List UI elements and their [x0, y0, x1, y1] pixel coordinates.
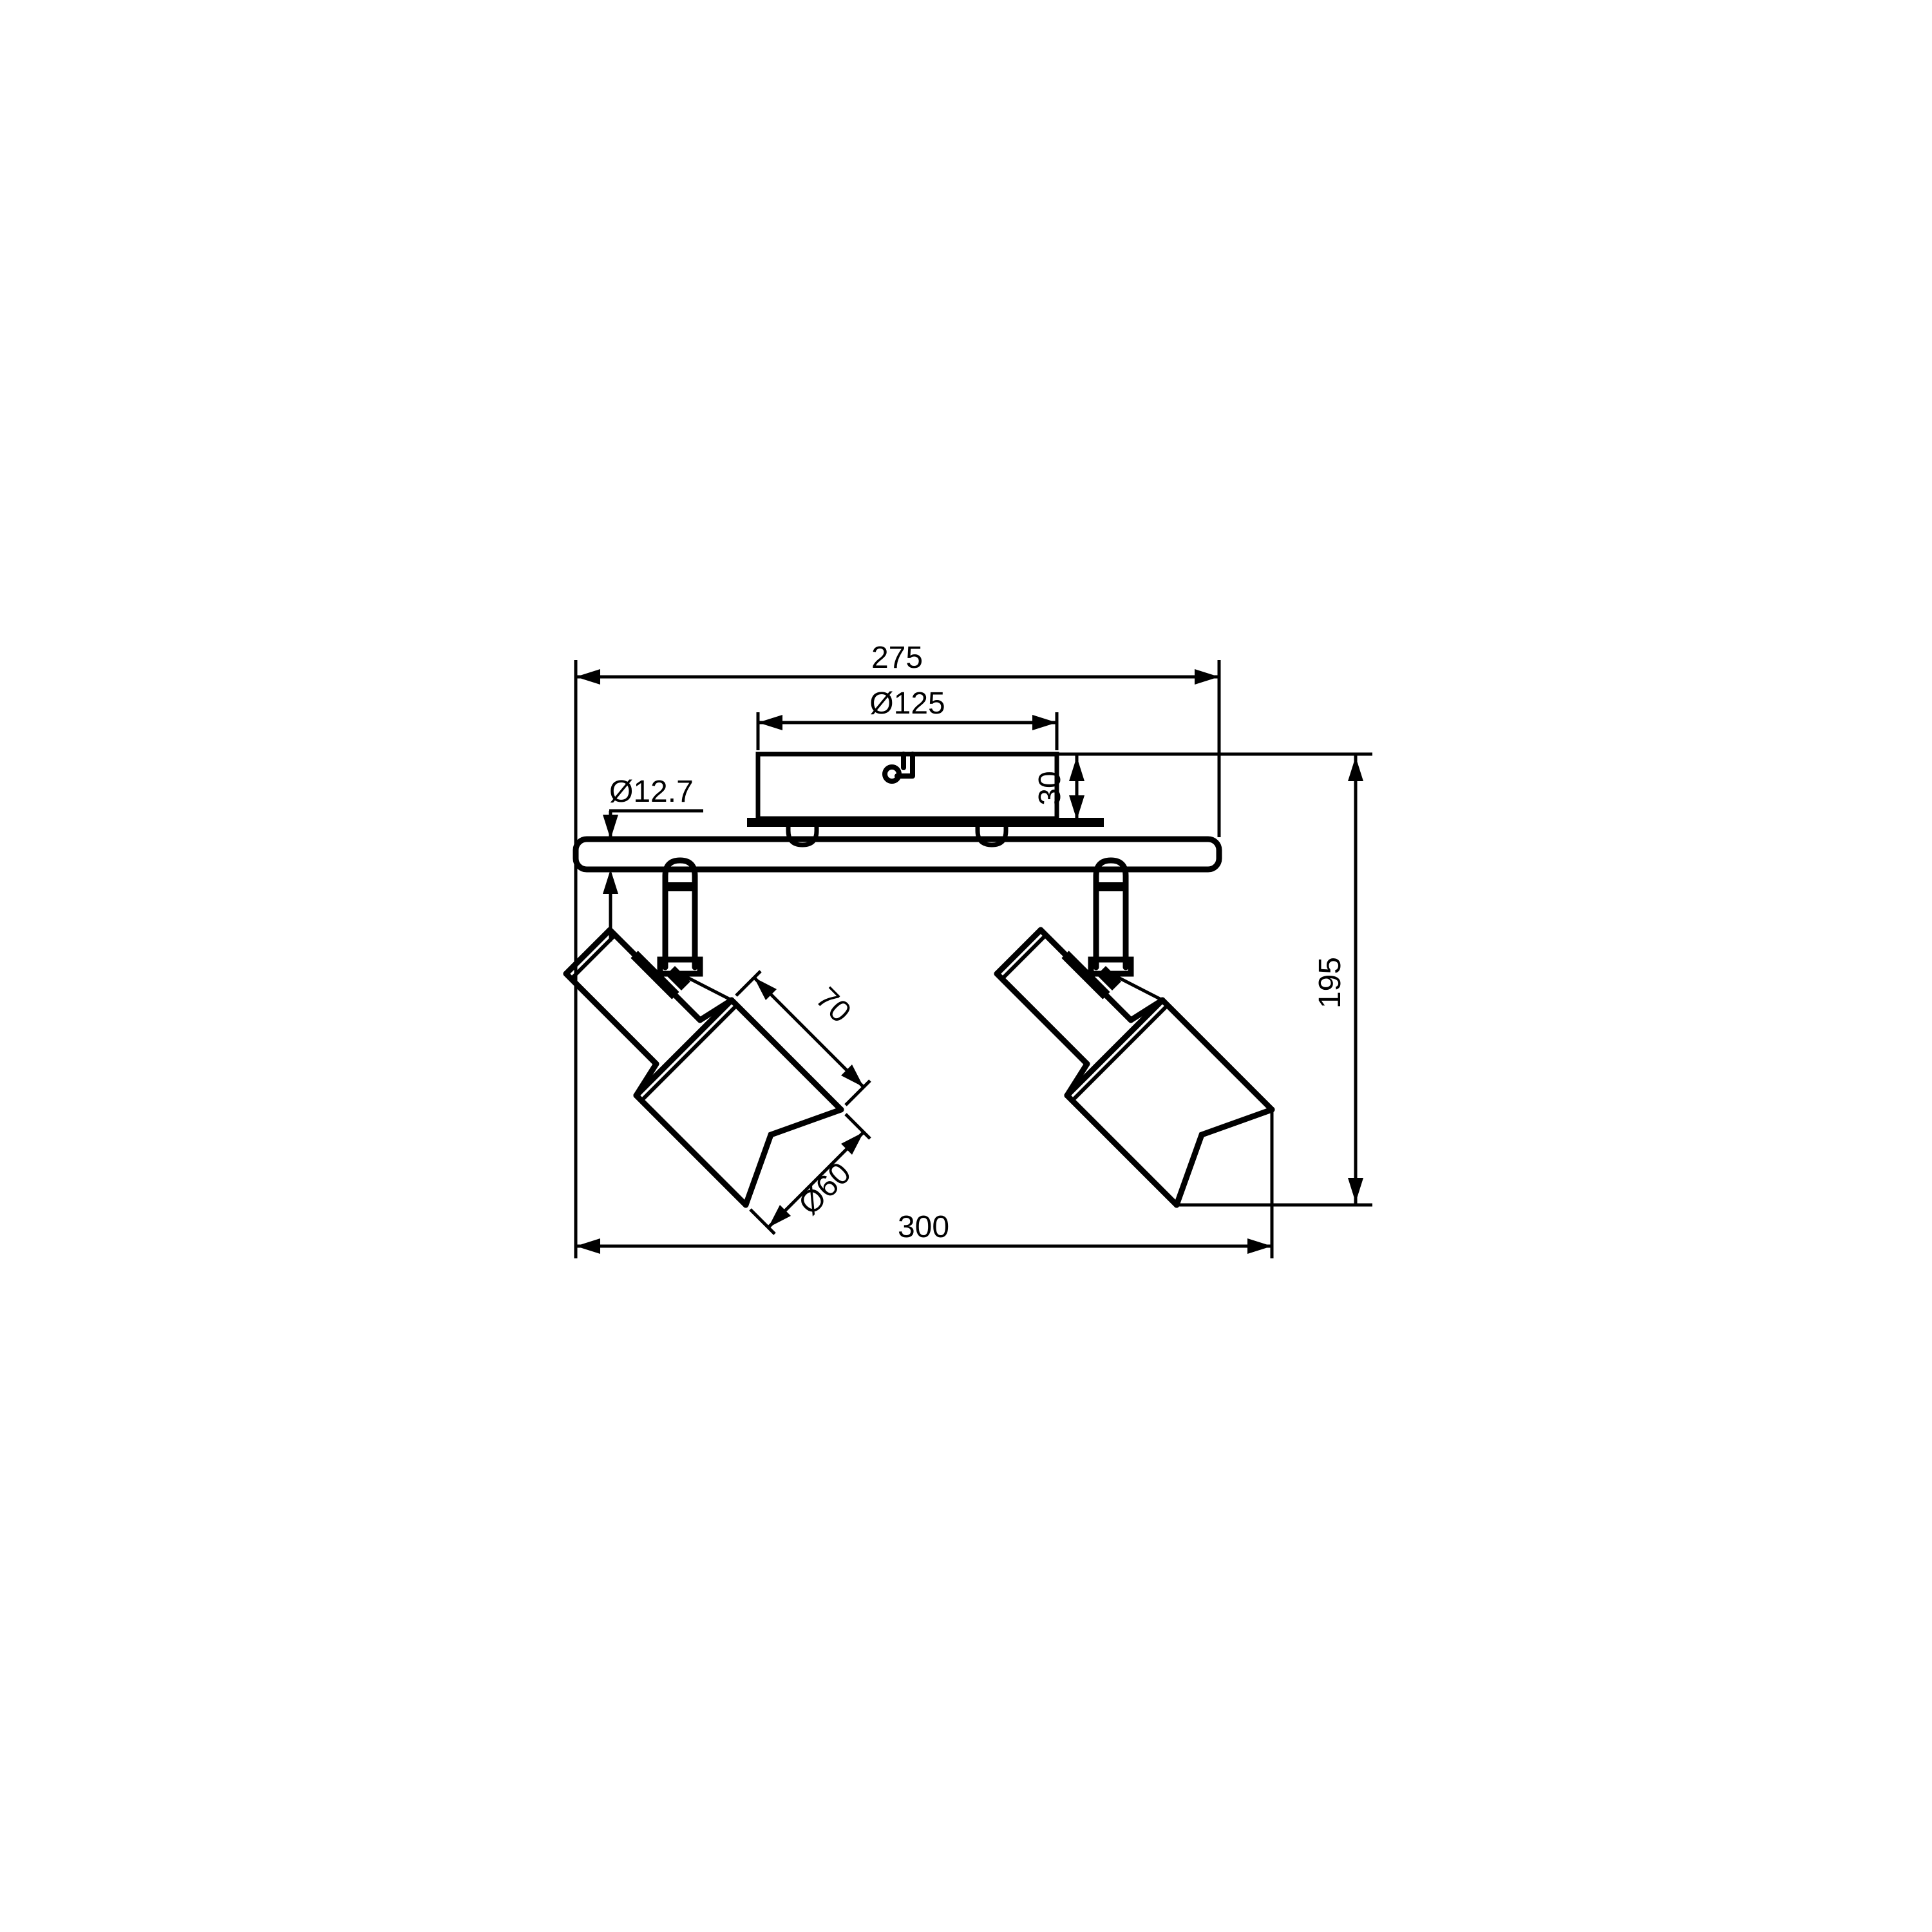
head-right-shade-top	[1162, 1000, 1272, 1110]
dimension-canopy-diameter: Ø125	[758, 687, 1057, 750]
dim-overall-height-label: 195	[1313, 957, 1347, 1009]
dim-overall-width-label: 300	[898, 1210, 949, 1244]
head-right-neck-bottom	[997, 974, 1087, 1064]
stem-left	[634, 860, 732, 1000]
cable-grommet-icon	[885, 754, 913, 781]
arrowhead-left	[576, 669, 600, 685]
head-right-front-opening	[1177, 1110, 1272, 1205]
head-left-neck-bottom	[566, 974, 656, 1064]
arrowhead-right	[1195, 669, 1219, 685]
arrowhead-right	[1032, 715, 1057, 730]
arrowhead-right	[1247, 1238, 1272, 1254]
extension-line-top	[846, 1114, 870, 1139]
head-left-cap-edge	[566, 930, 610, 974]
head-right-cap-inner	[1002, 935, 1046, 979]
dimension-overall-width: 300	[576, 1110, 1272, 1258]
dim-track-length-label: 275	[871, 641, 923, 675]
head-right-shade-back-inner	[1072, 1005, 1168, 1101]
stem-left-yoke	[680, 974, 732, 1000]
head-left-shade-back	[636, 1000, 732, 1095]
head-left-shade-bottom	[636, 1095, 746, 1205]
stem-right-tube	[1096, 860, 1126, 967]
head-left-shade-back-inner	[641, 1005, 737, 1101]
arrowhead-up	[1348, 757, 1363, 781]
dimension-overall-height: 195	[1177, 754, 1372, 1205]
extension-line-bottom	[750, 1209, 775, 1234]
dim-head-length-label: 70	[809, 981, 857, 1029]
dimension-head-diameter: Ø60	[750, 1114, 870, 1234]
head-right-shade-back	[1067, 1000, 1162, 1095]
stem-left-tube	[665, 860, 695, 967]
canopy-body	[758, 754, 1057, 819]
dimension-head-length: 70	[736, 971, 870, 1105]
dim-canopy-height-label: 30	[1033, 771, 1067, 805]
spot-head-right	[997, 930, 1272, 1205]
extension-line-back	[736, 971, 761, 996]
arrowhead-down	[1348, 1178, 1363, 1202]
spotlight-dimensional-drawing: 275 Ø125 30 Ø12.7 195	[0, 0, 1932, 1932]
dimension-tube-diameter: Ø12.7	[603, 775, 703, 942]
spot-head-left	[566, 930, 841, 1205]
dimension-canopy-height: 30	[1033, 754, 1372, 822]
arrowhead-left	[758, 715, 782, 730]
dim-canopy-diameter-label: Ø125	[869, 687, 945, 721]
head-right-shade-bottom	[1067, 1095, 1177, 1205]
stem-right-ring	[1095, 882, 1127, 891]
arrowhead-down	[1069, 795, 1084, 820]
head-right-cap-edge	[997, 930, 1041, 974]
arrowhead-left	[576, 1238, 600, 1254]
stem-left-ring	[664, 882, 696, 891]
head-left-cap-inner	[571, 935, 615, 979]
arrowhead-down	[603, 815, 618, 839]
dim-head-diameter-label: Ø60	[792, 1156, 858, 1222]
dimension-track-length: 275	[576, 641, 1219, 1258]
dim-tube-diameter-label: Ø12.7	[609, 775, 694, 809]
stem-right-yoke	[1111, 974, 1162, 1000]
extension-line-front	[846, 1081, 870, 1105]
arrowhead-up	[1069, 757, 1084, 781]
stem-right	[1065, 860, 1162, 1000]
